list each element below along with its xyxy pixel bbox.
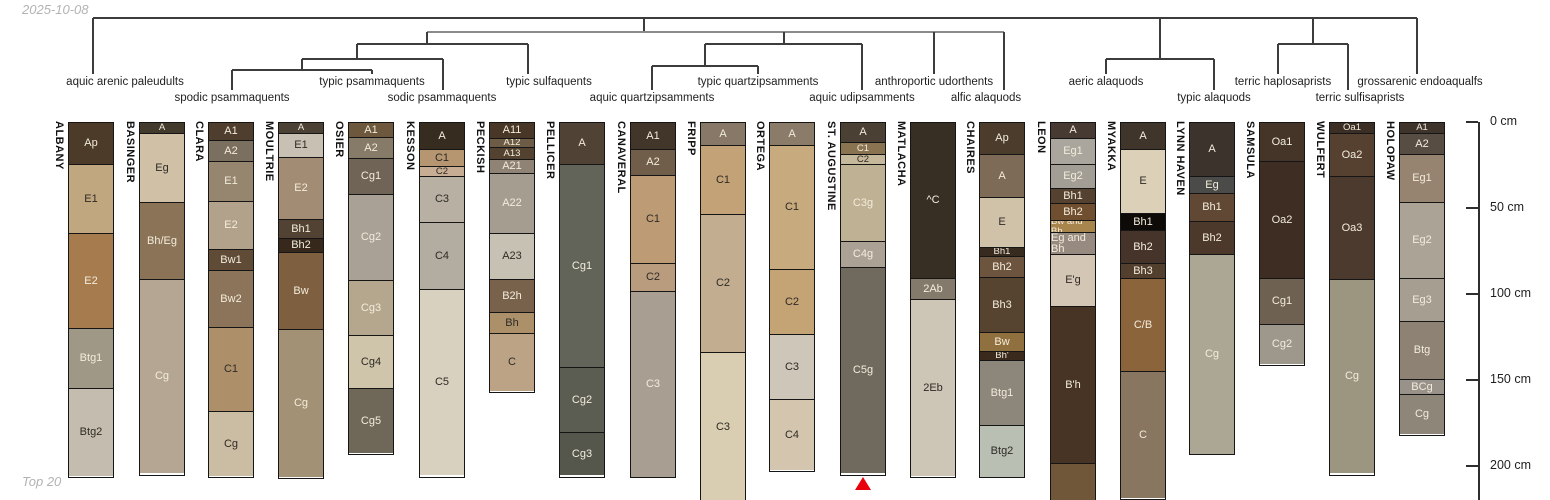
horizon-label: C2 <box>646 272 660 283</box>
horizon-label: C <box>508 357 516 368</box>
horizon-A12: A12 <box>490 138 534 147</box>
profile-name: CLARA <box>193 121 205 162</box>
horizon-C2: C2 <box>770 269 814 334</box>
horizon-label: A2 <box>646 157 659 168</box>
horizon-Bh3: Bh3 <box>980 277 1024 332</box>
horizon-label: Eg1 <box>1412 173 1432 184</box>
dendrogram-segment <box>651 66 653 90</box>
horizon-label: Btg1 <box>80 353 103 364</box>
horizon-E1: E1 <box>209 161 253 201</box>
profile-name: ORTEGA <box>754 121 766 171</box>
horizon-label: Cg <box>224 439 238 450</box>
depth-axis-tick <box>1466 207 1478 209</box>
dendrogram-segment <box>704 44 706 66</box>
taxon-label: typic psammaquents <box>319 76 424 88</box>
horizon-A: A <box>980 154 1024 197</box>
horizon-Bh3: Bh3 <box>1121 263 1165 278</box>
horizon-label: Cg1 <box>572 261 592 272</box>
red-triangle-marker <box>855 477 871 490</box>
horizon-label: C5g <box>853 365 873 376</box>
depth-axis-label: 100 cm <box>1490 286 1531 300</box>
horizon-label: A <box>998 171 1005 182</box>
horizon-A: A <box>1051 123 1095 138</box>
horizon-Eg2: Eg2 <box>1051 164 1095 188</box>
horizon-label: C1 <box>857 144 869 154</box>
horizon-label: C2 <box>716 278 730 289</box>
horizon-C4g: C4g <box>841 241 885 267</box>
horizon-A1: A1 <box>1400 123 1444 133</box>
horizon-label: E <box>998 217 1005 228</box>
horizon-Bw and Bh: Bw and Bh <box>1051 220 1095 232</box>
horizon-label: Cg5 <box>361 416 381 427</box>
profile-column: A1A2C1C2C3 <box>630 122 676 478</box>
horizon-unlabeled <box>1051 463 1095 500</box>
horizon-label: E2 <box>294 183 307 194</box>
dendrogram-segment <box>1106 58 1214 60</box>
horizon-label: C5 <box>435 377 449 388</box>
profile-column: A1A2Cg1Cg2Cg3Cg4Cg5 <box>348 122 394 455</box>
horizon-C: C <box>1121 371 1165 498</box>
horizon-label: Ap <box>995 133 1008 144</box>
dendrogram-segment <box>302 58 443 60</box>
horizon-label: Bh/Eg <box>147 236 177 247</box>
dendrogram-segment <box>757 66 759 74</box>
horizon-A22: A22 <box>490 173 534 233</box>
dendrogram-segment <box>232 69 372 71</box>
dendrogram-segment <box>231 70 233 90</box>
horizon-C3: C3 <box>770 334 814 399</box>
profile-name: ST. AUGUSTINE <box>825 121 837 211</box>
profile-column: AEBh1Bh2Bh3C/BC <box>1120 122 1166 500</box>
horizon-Cg: Cg <box>209 411 253 476</box>
horizon-label: C2 <box>785 297 799 308</box>
profile-name: MYAKKA <box>1105 121 1117 171</box>
horizon-B2h: B2h <box>490 279 534 312</box>
horizon-E: E <box>1121 149 1165 213</box>
taxon-label: aeric alaquods <box>1069 76 1144 88</box>
horizon-label: Ap <box>84 138 97 149</box>
horizon-label: Bh <box>505 318 518 329</box>
profile-column: ^C2Ab2Eb <box>910 122 956 478</box>
horizon-A2: A2 <box>1400 133 1444 154</box>
horizon-label: A <box>719 129 726 140</box>
profile-name: SAMSULA <box>1244 121 1256 179</box>
horizon-label: Cg1 <box>1272 296 1292 307</box>
horizon-label: A21 <box>502 161 522 172</box>
taxon-label: aquic arenic paleudults <box>66 76 184 88</box>
horizon-label: Eg2 <box>1063 171 1083 182</box>
horizon-2Eb: 2Eb <box>911 299 955 476</box>
horizon-A: A <box>1190 123 1234 176</box>
dendrogram-segment <box>1213 59 1215 90</box>
horizon-label: E1 <box>294 140 307 151</box>
taxon-label: aquic quartzipsamments <box>590 92 715 104</box>
depth-axis-label: 200 cm <box>1490 458 1531 472</box>
taxon-label: sodic psammaquents <box>388 92 497 104</box>
horizon-label: Oa3 <box>1342 223 1363 234</box>
profile-column: AEgBh/EgCg <box>139 122 185 476</box>
profile-column: ApE1E2Btg1Btg2 <box>68 122 114 478</box>
horizon-label: C <box>1139 430 1147 441</box>
horizon-label: A <box>1208 144 1215 155</box>
horizon-label: A22 <box>502 198 522 209</box>
dendrogram-segment <box>705 43 862 45</box>
horizon-Oa2: Oa2 <box>1260 161 1304 278</box>
horizon-label: Oa2 <box>1342 150 1363 161</box>
horizon-label: Cg <box>1345 371 1359 382</box>
profile-name: CHAIRES <box>964 121 976 174</box>
dendrogram-segment <box>1105 59 1107 74</box>
horizon-A11: A11 <box>490 123 534 138</box>
horizon-label: Cg1 <box>361 171 381 182</box>
horizon-label: Cg2 <box>361 232 381 243</box>
dendrogram-segment <box>652 65 758 67</box>
horizon-label: A2 <box>1415 139 1428 150</box>
profile-name: PECKISH <box>474 121 486 173</box>
horizon-label: C4g <box>853 249 873 260</box>
dendrogram-segment <box>427 31 1004 33</box>
taxon-label: aquic udipsamments <box>809 92 914 104</box>
profile-column: A1A2Eg1Eg2Eg3BtgBCgCg <box>1399 122 1445 436</box>
horizon-label: Btg2 <box>80 427 103 438</box>
profile-column: AC1C2C3 <box>700 122 746 500</box>
horizon-Bh2: Bh2 <box>1190 221 1234 254</box>
horizon-label: Eg3 <box>1412 295 1432 306</box>
horizon-Cg5: Cg5 <box>349 388 393 453</box>
profile-column: A1A2E1E2Bw1Bw2C1Cg <box>208 122 254 478</box>
taxon-label: grossarenic endoaqualfs <box>1357 76 1482 88</box>
horizon-C3: C3 <box>420 176 464 222</box>
profile-name: BASINGER <box>124 121 136 183</box>
horizon-Bw1: Bw1 <box>209 249 253 270</box>
profile-name: LEON <box>1035 121 1047 154</box>
horizon-label: Bh2 <box>1202 233 1222 244</box>
horizon-Bh: Bh <box>490 312 534 333</box>
horizon-label: Bh' <box>995 351 1008 360</box>
horizon-E1: E1 <box>279 133 323 157</box>
horizon-Btg2: Btg2 <box>980 425 1024 477</box>
horizon-A2: A2 <box>209 140 253 161</box>
horizon-label: A11 <box>503 125 522 136</box>
horizon-A1: A1 <box>631 123 675 149</box>
dendrogram-segment <box>1159 18 1161 59</box>
horizon-C2: C2 <box>701 214 745 352</box>
horizon-E2: E2 <box>279 157 323 219</box>
horizon-label: C4 <box>435 251 449 262</box>
horizon-Bw: Bw <box>279 252 323 329</box>
horizon-Bh1: Bh1 <box>1190 193 1234 221</box>
horizon-label: Bh1 <box>1133 217 1153 228</box>
horizon-label: B'h <box>1065 380 1081 391</box>
horizon-label: Bh1 <box>994 247 1011 256</box>
taxon-label: typic quartzipsamments <box>698 76 819 88</box>
horizon-A: A <box>701 123 745 145</box>
horizon-label: Bw <box>994 337 1009 348</box>
horizon-Bw: Bw <box>980 332 1024 351</box>
profile-name: LYNN HAVEN <box>1174 121 1186 196</box>
horizon-label: Eg and Bh <box>1051 233 1095 255</box>
depth-axis-label: 0 cm <box>1490 114 1517 128</box>
horizon-Bh1: Bh1 <box>279 219 323 238</box>
horizon-label: C3 <box>785 362 799 373</box>
horizon-C1: C1 <box>841 142 885 154</box>
horizon-label: Eg2 <box>1412 235 1432 246</box>
horizon-Btg2: Btg2 <box>69 388 113 476</box>
horizon-C1: C1 <box>209 327 253 411</box>
soil-profile-dendrogram-figure: 2025-10-08 Top 20 aquic arenic paleudult… <box>0 0 1550 500</box>
dendrogram-segment <box>1003 32 1005 90</box>
depth-axis-line <box>1478 122 1480 500</box>
profile-name: WULFERT <box>1314 121 1326 178</box>
horizon-Bw2: Bw2 <box>209 270 253 327</box>
horizon-label: A23 <box>502 251 522 262</box>
horizon-Btg1: Btg1 <box>980 360 1024 425</box>
horizon-label: C1 <box>716 175 730 186</box>
horizon-A1: A1 <box>209 123 253 140</box>
horizon-label: C3g <box>853 198 873 209</box>
horizon-label: A <box>578 138 585 149</box>
horizon-label: 2Eb <box>923 383 943 394</box>
horizon-label: Bh1 <box>1202 202 1222 213</box>
horizon-label: A2 <box>224 146 237 157</box>
horizon-A: A <box>770 123 814 145</box>
horizon-label: C3 <box>646 379 660 390</box>
horizon-C4: C4 <box>420 222 464 289</box>
horizon-Cg: Cg <box>1330 279 1374 473</box>
horizon-label: C/B <box>1134 320 1152 331</box>
dendrogram-segment <box>1277 44 1279 74</box>
horizon-C2: C2 <box>841 154 885 164</box>
depth-axis-tick <box>1466 293 1478 295</box>
horizon-A21: A21 <box>490 159 534 173</box>
horizon-label: Bh2 <box>1063 207 1083 218</box>
horizon-label: A1 <box>364 125 377 136</box>
horizon-label: A <box>298 123 304 133</box>
profile-name: PELLICER <box>544 121 556 179</box>
horizon-C/B: C/B <box>1121 278 1165 371</box>
horizon-E2: E2 <box>69 233 113 328</box>
horizon-E: E <box>980 197 1024 247</box>
horizon-E'g: E'g <box>1051 254 1095 306</box>
horizon-label: Cg4 <box>361 357 381 368</box>
horizon-label: C1 <box>785 202 799 213</box>
horizon-Cg3: Cg3 <box>560 432 604 475</box>
horizon-label: A <box>1139 131 1146 142</box>
horizon-A: A <box>1121 123 1165 149</box>
horizon-label: A <box>438 131 445 142</box>
horizon-A2: A2 <box>349 137 393 158</box>
horizon-label: C4 <box>785 430 799 441</box>
horizon-label: C2 <box>436 167 448 176</box>
horizon-label: Bh1 <box>1063 191 1083 202</box>
horizon-label: C1 <box>224 364 238 375</box>
horizon-Cg1: Cg1 <box>1260 278 1304 324</box>
horizon-label: Bh1 <box>291 224 311 235</box>
horizon-label: E <box>1139 176 1146 187</box>
horizon-Eg1: Eg1 <box>1400 154 1444 202</box>
dendrogram-segment <box>643 18 645 32</box>
horizon-C2: C2 <box>631 263 675 291</box>
horizon-label: ^C <box>926 195 939 206</box>
horizon-Cg3: Cg3 <box>349 280 393 335</box>
profile-column: ACg1Cg2Cg3 <box>559 122 605 478</box>
horizon-label: B2h <box>502 291 522 302</box>
horizon-label: Bh2 <box>291 240 311 251</box>
horizon-^C: ^C <box>911 123 955 278</box>
horizon-Cg1: Cg1 <box>560 164 604 367</box>
horizon-label: E2 <box>84 276 97 287</box>
depth-axis-tick <box>1466 379 1478 381</box>
horizon-A: A <box>279 123 323 133</box>
horizon-label: Cg <box>155 371 169 382</box>
dendrogram-segment <box>371 70 373 74</box>
depth-axis-tick <box>1466 121 1478 123</box>
profile-name: MOULTRIE <box>263 121 275 182</box>
profile-column: AC1C2C3gC4gC5g <box>840 122 886 476</box>
horizon-Cg2: Cg2 <box>1260 324 1304 364</box>
horizon-label: Btg2 <box>991 446 1014 457</box>
horizon-label: Bh2 <box>992 262 1012 273</box>
horizon-label: A2 <box>364 143 377 154</box>
horizon-Eg: Eg <box>1190 176 1234 193</box>
horizon-label: C3 <box>716 422 730 433</box>
horizon-A1: A1 <box>349 123 393 137</box>
horizon-label: Cg3 <box>361 303 381 314</box>
profile-name: ALBANY <box>53 121 65 170</box>
horizon-label: E1 <box>224 176 237 187</box>
taxon-label: anthroportic udorthents <box>875 76 993 88</box>
dendrogram-segment <box>783 32 785 44</box>
horizon-2Ab: 2Ab <box>911 278 955 299</box>
horizon-C2: C2 <box>420 166 464 176</box>
profile-column: Oa1Oa2Cg1Cg2 <box>1259 122 1305 366</box>
horizon-Cg: Cg <box>140 279 184 473</box>
horizon-Bh1: Bh1 <box>1051 188 1095 203</box>
horizon-label: Bw <box>293 286 308 297</box>
horizon-label: Cg2 <box>572 395 592 406</box>
horizon-Eg and Bh: Eg and Bh <box>1051 232 1095 254</box>
horizon-label: Cg2 <box>1272 339 1292 350</box>
profile-name: HOLOPAW <box>1384 121 1396 181</box>
horizon-Cg4: Cg4 <box>349 335 393 388</box>
horizon-E1: E1 <box>69 164 113 233</box>
dendrogram-segment <box>527 44 529 74</box>
dendrogram-segment <box>861 44 863 90</box>
dendrogram-segment <box>356 44 358 59</box>
horizon-A: A <box>140 123 184 133</box>
horizon-label: 2Ab <box>923 284 943 295</box>
horizon-A: A <box>420 123 464 149</box>
profile-column: Oa1Oa2Oa3Cg <box>1329 122 1375 476</box>
profile-name: KESSON <box>404 121 416 170</box>
horizon-Eg3: Eg3 <box>1400 278 1444 321</box>
profile-column: AEg1Eg2Bh1Bh2Bw and BhEg and BhE'gB'h <box>1050 122 1096 500</box>
taxon-label: typic alaquods <box>1177 92 1251 104</box>
profile-column: AC1C2C3C4C5 <box>419 122 465 478</box>
horizon-Eg: Eg <box>140 133 184 202</box>
dendrogram-segment <box>933 32 935 74</box>
dendrogram-segment <box>1416 18 1418 74</box>
dendrogram-segment <box>426 32 428 44</box>
horizon-label: Oa1 <box>1343 123 1361 133</box>
dendrogram-segment <box>1278 43 1348 45</box>
horizon-C1: C1 <box>701 145 745 214</box>
dendrogram-segment <box>93 17 1417 19</box>
horizon-label: A <box>1069 125 1076 136</box>
horizon-A2: A2 <box>631 149 675 175</box>
depth-axis-label: 50 cm <box>1490 200 1524 214</box>
horizon-label: Oa2 <box>1272 215 1293 226</box>
horizon-Oa1: Oa1 <box>1260 123 1304 161</box>
horizon-label: A1 <box>224 126 237 137</box>
horizon-Bh1: Bh1 <box>980 247 1024 256</box>
taxon-label: alfic alaquods <box>951 92 1021 104</box>
horizon-label: C3 <box>435 194 449 205</box>
bottom-note: Top 20 <box>22 474 61 489</box>
profile-name: OSIER <box>333 121 345 158</box>
horizon-C5g: C5g <box>841 267 885 473</box>
horizon-Cg: Cg <box>1190 254 1234 454</box>
profile-column: AE1E2Bh1Bh2BwCg <box>278 122 324 479</box>
horizon-C3: C3 <box>701 352 745 500</box>
horizon-label: Eg <box>155 163 168 174</box>
horizon-label: A <box>859 127 866 138</box>
horizon-label: E2 <box>224 220 237 231</box>
horizon-label: Bw and Bh <box>1051 220 1095 232</box>
horizon-A23: A23 <box>490 233 534 279</box>
horizon-label: A13 <box>504 149 521 159</box>
horizon-label: A12 <box>504 138 521 147</box>
horizon-label: Bh3 <box>1133 266 1153 277</box>
horizon-BCg: BCg <box>1400 379 1444 394</box>
horizon-Bh2: Bh2 <box>980 256 1024 277</box>
date-note: 2025-10-08 <box>22 2 89 17</box>
dendrogram-segment <box>92 18 94 74</box>
horizon-Eg1: Eg1 <box>1051 138 1095 164</box>
horizon-C: C <box>490 333 534 391</box>
horizon-label: Cg <box>1205 349 1219 360</box>
horizon-Cg: Cg <box>279 329 323 477</box>
taxon-label: spodic psammaquents <box>174 92 289 104</box>
horizon-C1: C1 <box>631 175 675 263</box>
horizon-A: A <box>560 123 604 164</box>
horizon-A13: A13 <box>490 147 534 159</box>
horizon-C4: C4 <box>770 399 814 470</box>
horizon-Cg2: Cg2 <box>349 194 393 280</box>
horizon-C3: C3 <box>631 291 675 477</box>
horizon-label: E1 <box>84 194 97 205</box>
horizon-label: Oa1 <box>1272 137 1293 148</box>
profile-column: AC1C2C3C4 <box>769 122 815 472</box>
horizon-Oa1: Oa1 <box>1330 123 1374 133</box>
taxon-label: terric sulfisaprists <box>1316 92 1405 104</box>
profile-name: CANAVERAL <box>615 121 627 194</box>
horizon-Bh': Bh' <box>980 351 1024 360</box>
horizon-label: Bw1 <box>220 255 241 266</box>
dendrogram-segment <box>1312 18 1314 44</box>
horizon-Ap: Ap <box>69 123 113 164</box>
horizon-label: Eg1 <box>1063 146 1083 157</box>
horizon-Bh/Eg: Bh/Eg <box>140 202 184 279</box>
horizon-Oa2: Oa2 <box>1330 133 1374 176</box>
horizon-A: A <box>841 123 885 142</box>
horizon-label: C1 <box>435 153 449 164</box>
horizon-B'h: B'h <box>1051 306 1095 463</box>
horizon-label: C2 <box>857 155 869 164</box>
horizon-Cg2: Cg2 <box>560 367 604 432</box>
horizon-Eg2: Eg2 <box>1400 202 1444 278</box>
horizon-label: E'g <box>1065 275 1081 286</box>
